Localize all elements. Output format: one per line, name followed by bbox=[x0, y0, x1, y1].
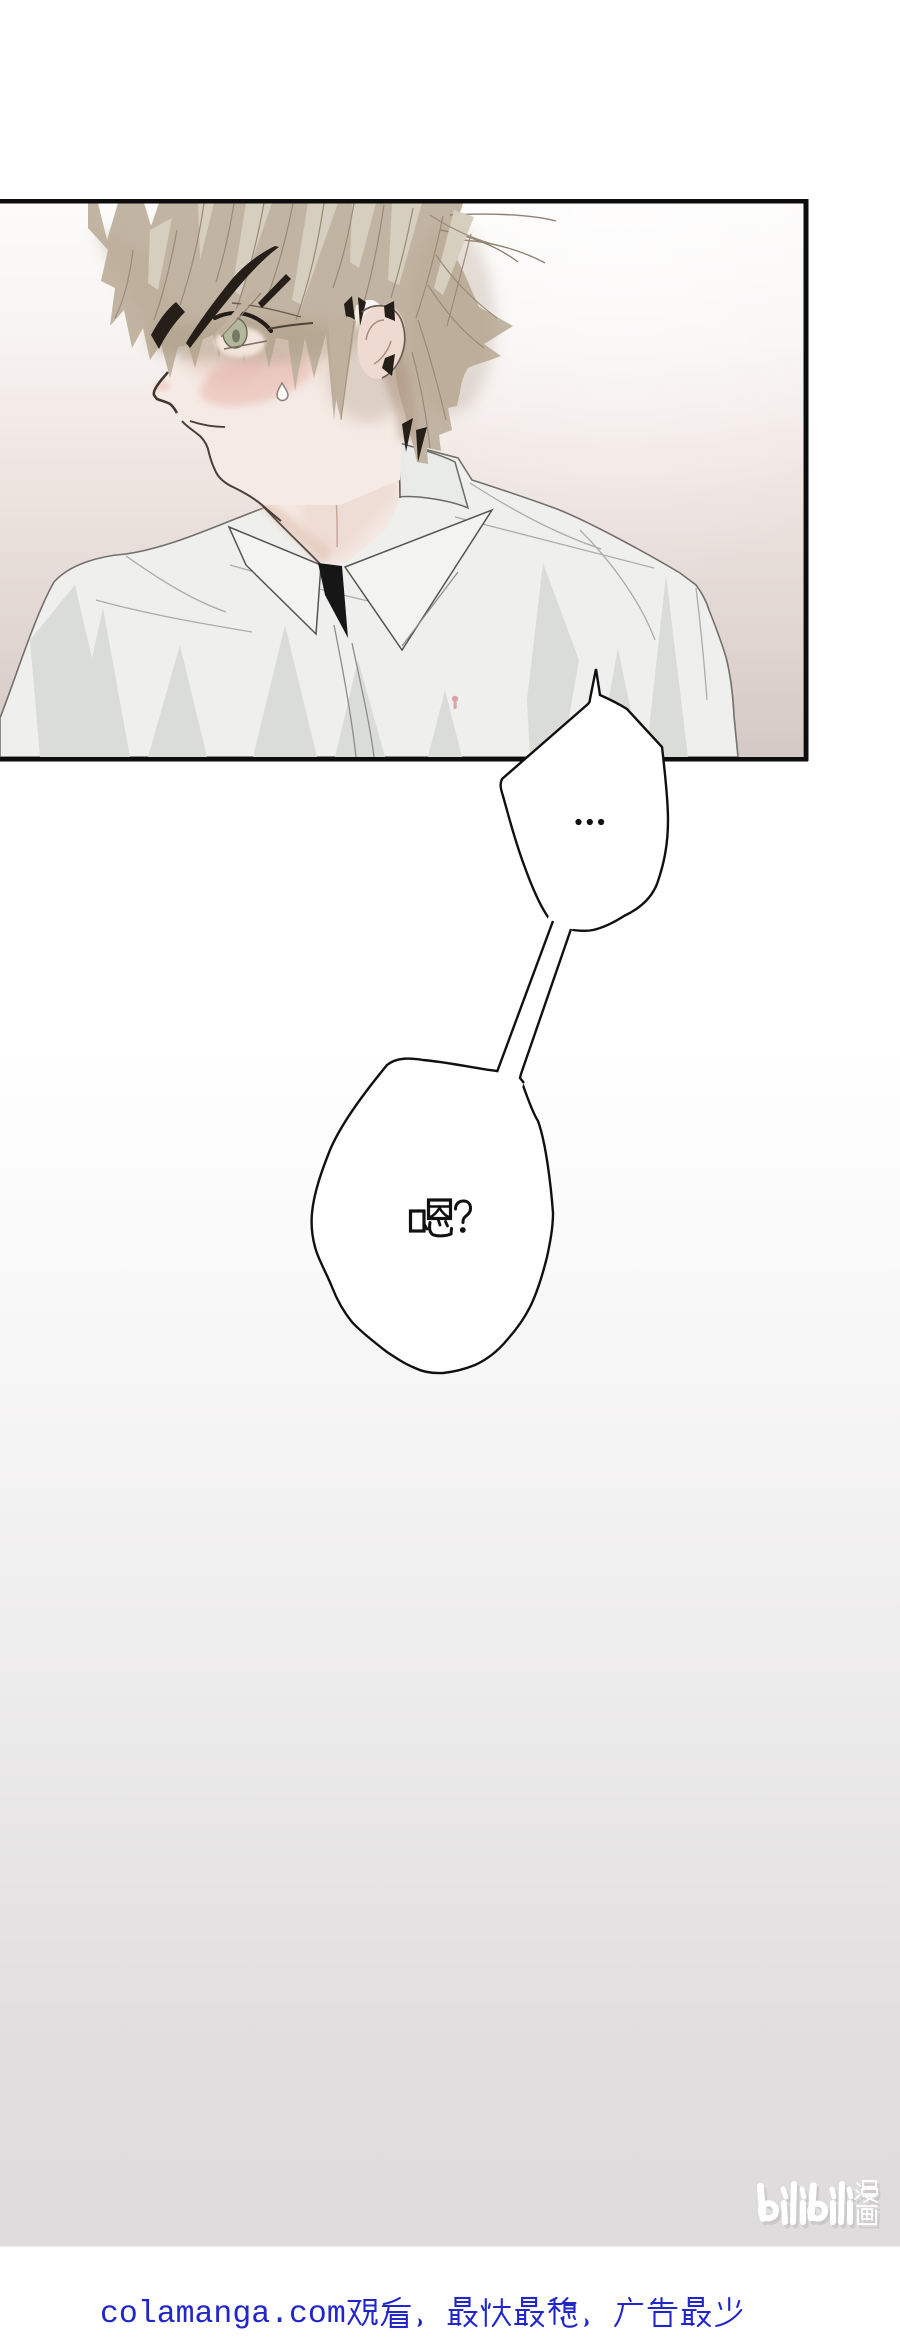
svg-text:colamanga.com: colamanga.com bbox=[100, 2297, 346, 2332]
